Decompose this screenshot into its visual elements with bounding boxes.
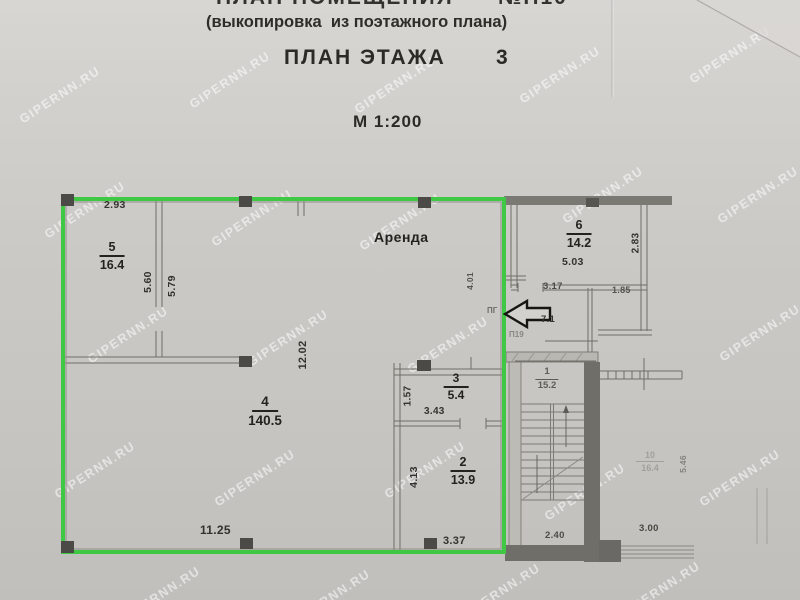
dim-1-85: 1.85 [612, 285, 631, 295]
room1-number: 1 [535, 367, 558, 380]
room2-number: 2 [451, 455, 476, 472]
room2-area: 13.9 [451, 472, 476, 487]
room6-number: 6 [567, 218, 592, 235]
room1-stairs-label: 1 15.2 [535, 367, 558, 391]
scan-paper-edge [612, 0, 800, 97]
dim-4-13: 4.13 [408, 466, 420, 488]
dim-5-03: 5.03 [562, 256, 584, 268]
dim-2-40: 2.40 [545, 530, 565, 541]
bleed-through-lines [757, 488, 767, 544]
room10-area: 16.4 [636, 462, 664, 473]
room4-number: 4 [252, 394, 278, 412]
dim-2-83: 2.83 [631, 233, 642, 254]
room5-label: 5 16.4 [100, 240, 125, 272]
dim-5-60: 5.60 [142, 271, 154, 293]
dim-5-46: 5.46 [678, 455, 688, 473]
note-p19: П19 [509, 330, 524, 339]
room1-area: 15.2 [535, 380, 558, 392]
dim-5-79: 5.79 [166, 275, 178, 297]
room6-area: 14.2 [567, 235, 592, 250]
dim-3-43: 3.43 [424, 406, 445, 417]
room3-area: 5.4 [444, 388, 469, 402]
dim-4-01: 4.01 [465, 272, 475, 290]
floor-plan-drawing [0, 0, 800, 600]
room3-number: 3 [444, 372, 469, 388]
room10-bleed-label: 10 16.4 [636, 450, 664, 473]
dim-11-25: 11.25 [200, 523, 231, 537]
room5-number: 5 [100, 240, 125, 257]
dim-3-37: 3.37 [443, 535, 466, 547]
rental-area-label: Аренда [374, 229, 429, 245]
ladder-symbol [600, 358, 682, 390]
room3-label: 3 5.4 [444, 372, 469, 403]
dim-3-17: 3.17 [543, 281, 563, 292]
room4-label: 4 140.5 [248, 394, 282, 428]
room2-label: 2 13.9 [451, 455, 476, 487]
room6-label: 6 14.2 [567, 218, 592, 250]
fire-escape [599, 540, 694, 562]
dim-3-00: 3.00 [639, 523, 659, 534]
room10-number: 10 [636, 450, 664, 462]
dim-12-02: 12.02 [297, 340, 309, 369]
room4-area: 140.5 [248, 412, 282, 428]
note-pg: ПГ [487, 306, 497, 315]
interior-walls [64, 201, 504, 552]
scanned-floor-plan: GIPERNN.RUGIPERNN.RUGIPERNN.RUGIPERNN.RU… [0, 0, 800, 600]
dim-7-1: 7.1 [541, 314, 555, 325]
dim-1-57: 1.57 [403, 386, 414, 407]
room5-area: 16.4 [100, 257, 125, 272]
dim-2-93: 2.93 [104, 199, 126, 211]
